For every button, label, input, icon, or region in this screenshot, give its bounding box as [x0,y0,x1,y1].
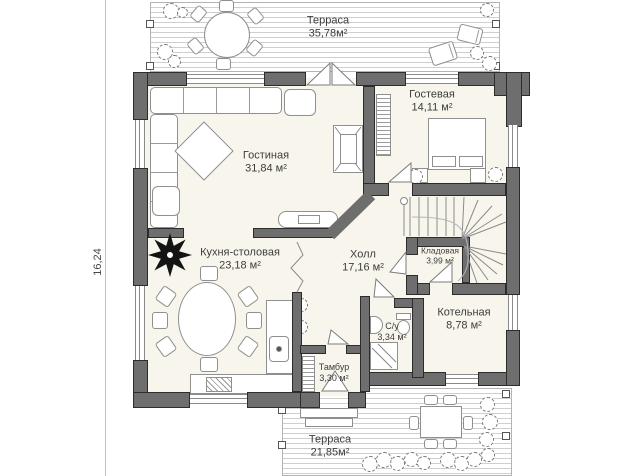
room-name: Гостиная [243,150,289,163]
shrub-icon [480,397,495,412]
shrub-icon [390,456,405,471]
wall [363,183,389,196]
bed-pillow [459,156,483,167]
wall [362,372,446,386]
room-area: 8,78 м² [437,320,490,333]
storage-label: Кладовая 3,99 м² [421,246,459,267]
living-label: Гостиная 31,84 м² [243,150,289,177]
chair [409,416,419,430]
closet-shelving [302,356,315,392]
wall [348,392,366,408]
room-area: 35,78м² [307,28,349,41]
room-name: С/у [377,321,406,332]
terrace-top-label: Терраса 35,78м² [307,15,349,42]
tv-icon [298,215,320,224]
terrace-round-table [204,12,250,58]
guest-label: Гостевая 14,11 м² [409,89,455,116]
fireplace-inner [340,134,357,164]
wall [133,72,148,120]
deck-post [278,441,286,449]
chair [219,0,234,12]
wall [133,168,148,286]
plant-icon [488,167,503,182]
wall [462,247,470,283]
chair [443,439,457,449]
chair [463,416,473,430]
window [135,286,145,360]
wall [363,86,375,186]
room-area: 21,85м² [309,447,351,460]
room-area: 17,16 м² [342,262,384,275]
chair [443,395,457,405]
dining-table [178,282,236,356]
window [187,74,264,84]
room-area: 3,30 м² [319,373,350,384]
room-name: Холл [342,249,384,262]
window [508,125,518,167]
kitchen-label: Кухня-столовая 23,18 м² [200,247,280,274]
wall [406,275,418,295]
wall [356,72,406,86]
wall [412,298,424,378]
wall [406,237,418,255]
wall [247,392,302,408]
shrub-icon [470,46,484,60]
window [135,120,145,168]
wall [253,228,333,238]
stove [206,377,232,392]
toilet-tank [396,313,411,320]
wall [506,167,520,295]
room-area: 3,34 м² [377,332,406,343]
room-area: 23,18 м² [200,260,280,273]
terrace-bottom-label: Терраса 21,85м² [309,434,351,461]
faucet-icon [276,346,282,352]
chair [424,395,438,405]
dimension-label: 16,24 [92,248,104,276]
room-area: 31,84 м² [243,163,289,176]
hall-label: Холл 17,16 м² [342,249,384,276]
wall [412,183,506,196]
shrub-icon [177,7,188,18]
deck-post [492,20,500,28]
armchair [284,89,316,116]
armchair [152,186,180,216]
deck-post [146,62,154,70]
shrub-icon [168,55,181,68]
chair [200,357,218,372]
room-area: 14,11 м² [409,102,455,115]
wall [264,72,306,86]
deck-post [146,20,154,28]
wall [300,392,320,408]
nightstand [470,168,486,183]
wall [506,72,522,127]
entry-step [300,408,358,418]
chair [246,312,262,329]
shrub-icon [467,452,482,467]
shower [370,342,398,370]
shrub-icon [481,448,495,462]
shrub-icon [417,456,431,470]
terrace-table [420,406,462,438]
room-area: 3,99 м² [421,256,459,266]
bed-pillow [432,156,456,167]
shrub-icon [479,432,494,447]
chair [424,439,438,449]
wall [506,330,520,386]
shrub-icon [482,414,498,430]
room-name: Терраса [307,15,349,28]
window [508,295,518,330]
wall [292,292,302,392]
floor-plan: 16,24 [0,0,634,476]
deck-post [502,390,510,398]
boiler-label: Котельная 8,78 м² [437,307,490,334]
entry-step [305,418,353,427]
window [190,394,247,404]
room-name: Котельная [437,307,490,320]
window [446,374,478,384]
plant-icon [408,169,423,184]
room-name: Терраса [309,434,351,447]
chair [216,58,231,70]
dimension-line [105,0,106,476]
tambour-label: Тамбур 3,30 м² [319,362,350,384]
window [406,74,458,84]
room-name: Кладовая [421,246,459,256]
wall [133,392,190,408]
chair [152,312,168,329]
wall [300,345,326,354]
shrub-icon [482,56,497,71]
sofa [150,87,282,114]
room-name: Тамбур [319,362,350,373]
wall [360,296,370,392]
shrub-icon [480,3,494,17]
deck-post [502,432,510,440]
wall [148,228,184,238]
room-name: Кухня-столовая [200,247,280,260]
wardrobe [376,94,391,156]
wall [452,283,506,295]
room-name: Гостевая [409,89,455,102]
wc-label: С/у 3,34 м² [377,321,406,343]
